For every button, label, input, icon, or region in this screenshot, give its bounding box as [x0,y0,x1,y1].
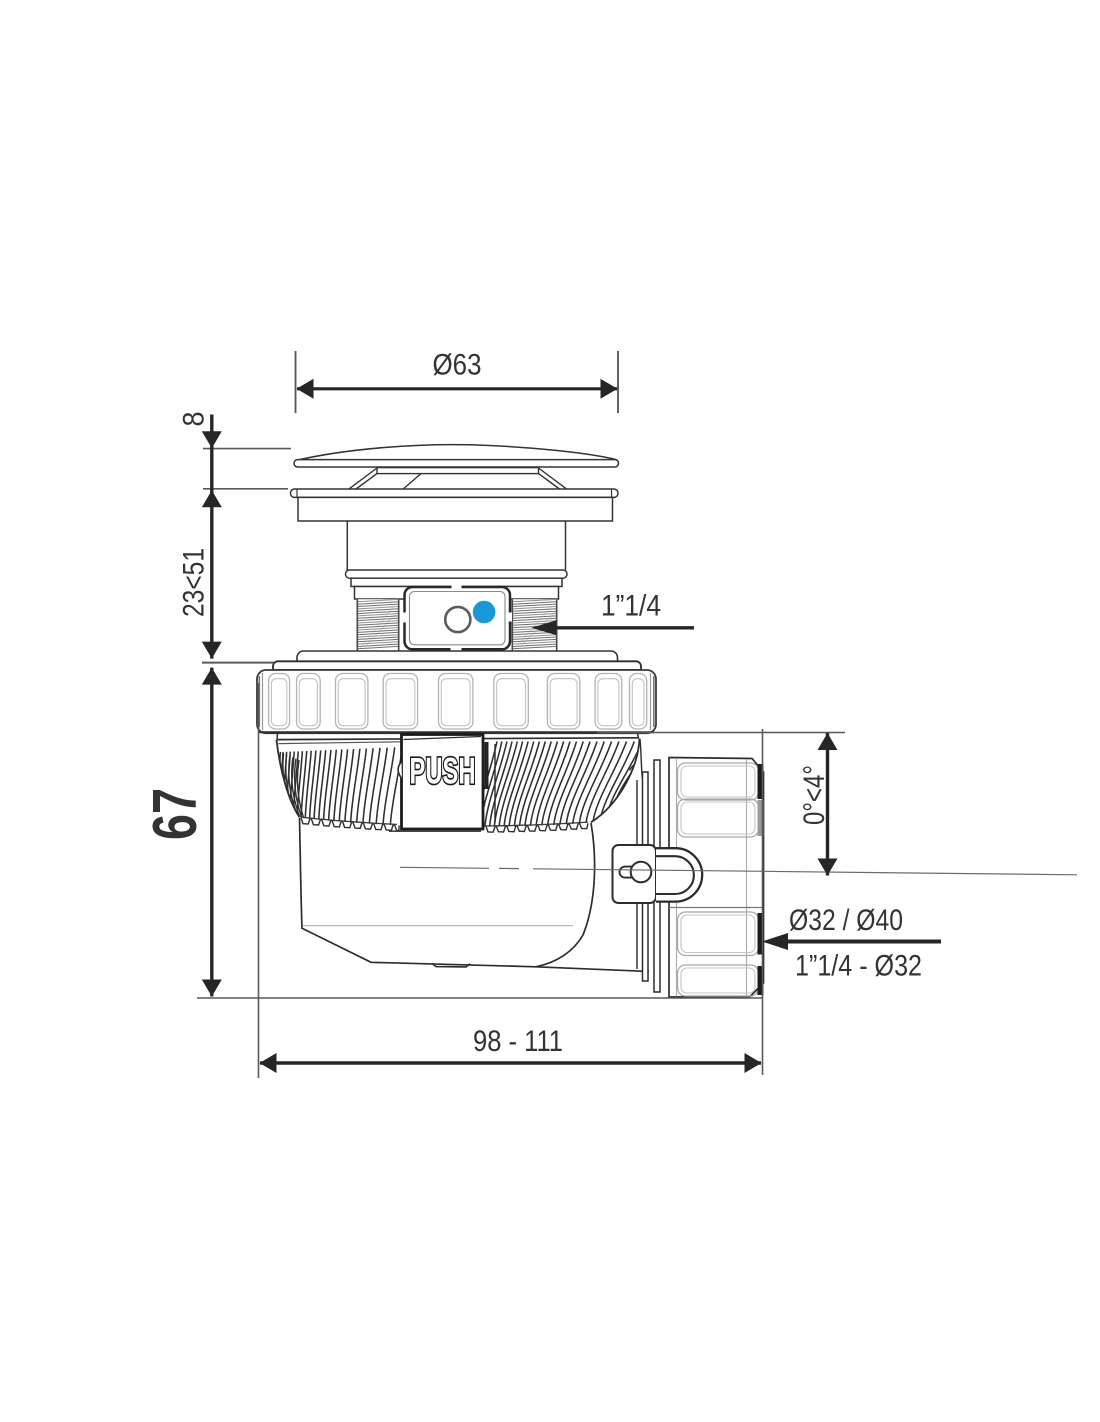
svg-text:23<51: 23<51 [178,548,211,617]
svg-text:1”1/4 - Ø32: 1”1/4 - Ø32 [795,950,922,983]
svg-text:PUSH: PUSH [410,751,476,792]
svg-text:Ø63: Ø63 [433,349,482,382]
svg-text:67: 67 [141,788,210,840]
svg-text:98 - 111: 98 - 111 [473,1025,563,1058]
svg-text:8: 8 [178,412,211,427]
svg-text:0°<4°: 0°<4° [798,765,831,825]
svg-text:1”1/4: 1”1/4 [601,590,661,623]
svg-text:Ø32 / Ø40: Ø32 / Ø40 [789,904,903,937]
